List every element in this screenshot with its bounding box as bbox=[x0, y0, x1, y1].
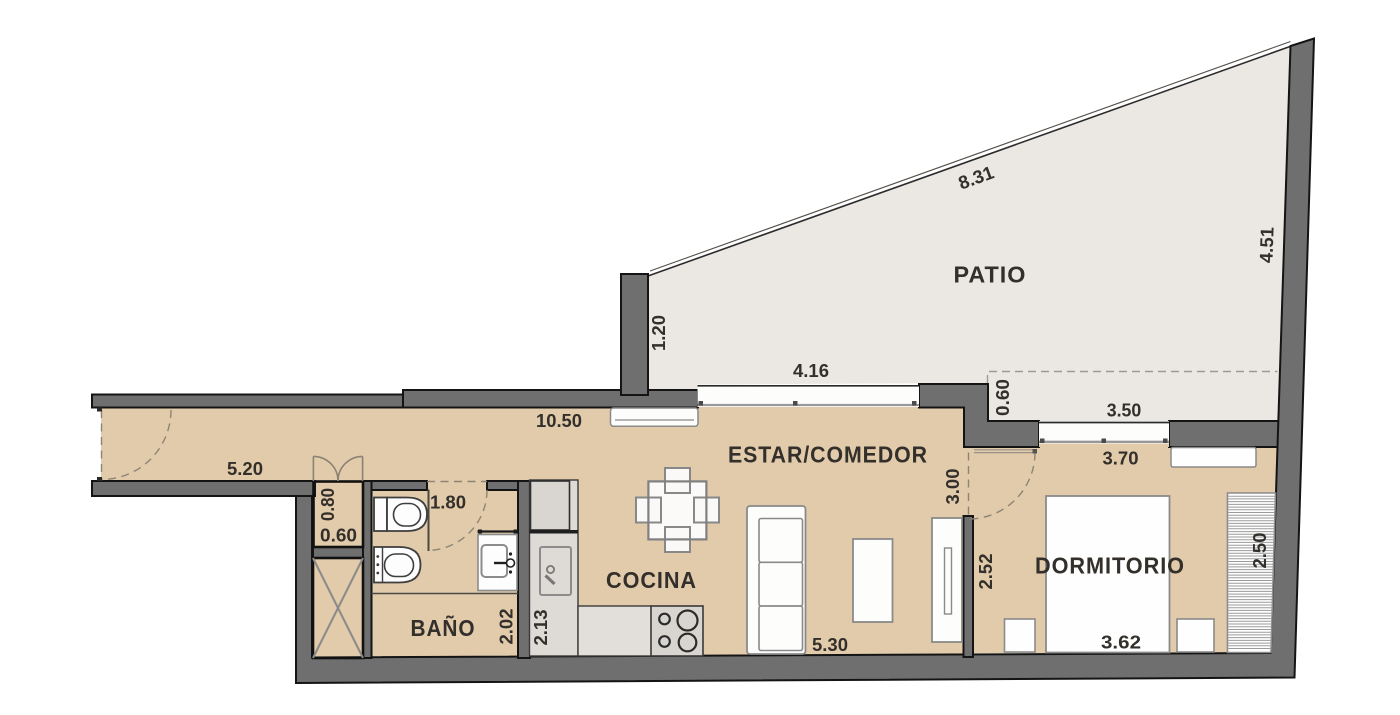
svg-text:3.62: 3.62 bbox=[1101, 632, 1141, 653]
svg-text:PATIO: PATIO bbox=[954, 262, 1027, 288]
svg-text:2.02: 2.02 bbox=[496, 609, 517, 645]
svg-text:BAÑO: BAÑO bbox=[411, 614, 476, 641]
svg-text:3.00: 3.00 bbox=[942, 469, 963, 505]
svg-text:2.50: 2.50 bbox=[1249, 533, 1270, 569]
svg-text:5.20: 5.20 bbox=[227, 458, 263, 479]
svg-text:2.13: 2.13 bbox=[530, 610, 551, 646]
svg-text:ESTAR/COMEDOR: ESTAR/COMEDOR bbox=[728, 442, 928, 468]
svg-text:5.30: 5.30 bbox=[812, 634, 848, 655]
svg-text:4.51: 4.51 bbox=[1255, 227, 1277, 264]
svg-text:2.52: 2.52 bbox=[975, 554, 996, 590]
svg-text:0.60: 0.60 bbox=[320, 525, 357, 546]
svg-text:1.80: 1.80 bbox=[430, 492, 466, 513]
svg-text:0.80: 0.80 bbox=[317, 488, 338, 521]
svg-text:DORMITORIO: DORMITORIO bbox=[1035, 553, 1185, 579]
svg-text:1.20: 1.20 bbox=[648, 315, 669, 351]
svg-text:10.50: 10.50 bbox=[536, 410, 582, 431]
svg-text:0.60: 0.60 bbox=[992, 379, 1013, 416]
svg-text:3.70: 3.70 bbox=[1103, 448, 1139, 469]
svg-text:4.16: 4.16 bbox=[793, 360, 829, 381]
svg-text:COCINA: COCINA bbox=[606, 567, 697, 593]
svg-text:3.50: 3.50 bbox=[1107, 400, 1142, 421]
